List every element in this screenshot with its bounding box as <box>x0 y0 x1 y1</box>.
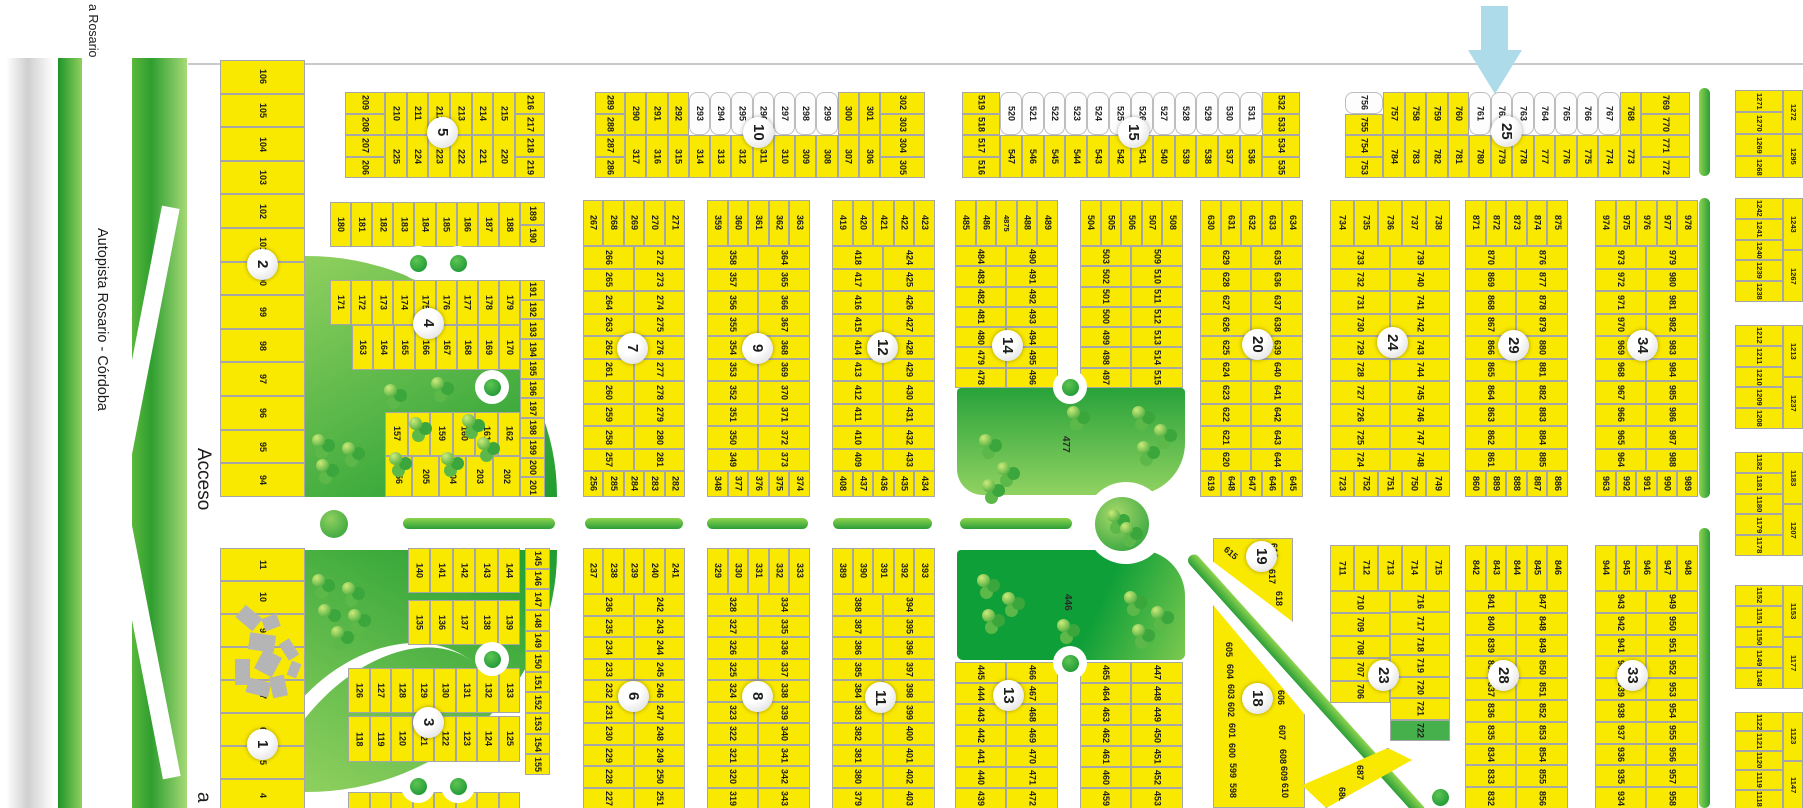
lot-178[interactable]: 178 <box>478 280 499 325</box>
lot-94[interactable]: 94 <box>220 463 305 497</box>
lot-539[interactable]: 539 <box>1175 135 1197 178</box>
lot-478[interactable]: 478 <box>955 368 1006 388</box>
lot-274[interactable]: 274 <box>634 291 685 314</box>
lot-964[interactable]: 964 <box>1595 449 1646 472</box>
lot-502[interactable]: 502 <box>1080 266 1131 286</box>
lot-835[interactable]: 835 <box>1465 722 1516 744</box>
lot-397[interactable]: 397 <box>883 659 935 681</box>
lot-342[interactable]: 342 <box>758 766 810 788</box>
lot-219[interactable]: 219 <box>515 157 545 179</box>
lot-408[interactable]: 408 <box>832 471 853 497</box>
lot-633[interactable]: 633 <box>1262 200 1283 246</box>
lot-938[interactable]: 938 <box>1595 700 1646 722</box>
lot-535[interactable]: 535 <box>1262 157 1300 179</box>
lot-234[interactable]: 234 <box>583 637 634 659</box>
lot-630[interactable]: 630 <box>1200 200 1221 246</box>
lot-174[interactable]: 174 <box>393 280 414 325</box>
lot-547[interactable]: 547 <box>1000 135 1022 178</box>
lot-360[interactable]: 360 <box>728 200 749 246</box>
lot-284[interactable]: 284 <box>624 471 644 497</box>
lot-987[interactable]: 987 <box>1646 426 1698 449</box>
lot-874[interactable]: 874 <box>1527 200 1548 246</box>
lot-947[interactable]: 947 <box>1657 545 1678 591</box>
lot-133[interactable]: 133 <box>499 668 521 713</box>
lot-403[interactable]: 403 <box>883 788 935 808</box>
lot-436[interactable]: 436 <box>873 471 894 497</box>
lot-315[interactable]: 315 <box>668 135 689 178</box>
lot-298[interactable]: 298 <box>795 92 816 135</box>
lot-241[interactable]: 241 <box>665 548 685 594</box>
lot-645[interactable]: 645 <box>1282 471 1303 497</box>
lot-249[interactable]: 249 <box>634 745 685 767</box>
lot-780[interactable]: 780 <box>1469 135 1491 178</box>
lot-719[interactable]: 719 <box>1390 655 1450 676</box>
lot-465[interactable]: 465 <box>1080 662 1131 683</box>
lot-199[interactable]: 199 <box>520 438 545 458</box>
lot-754[interactable]: 754 <box>1345 135 1383 157</box>
lot-519[interactable]: 519 <box>962 92 1000 114</box>
lot-991[interactable]: 991 <box>1636 471 1657 497</box>
lot-1209[interactable]: 1209 <box>1735 387 1783 408</box>
lot-126[interactable]: 126 <box>348 668 370 713</box>
lot-601[interactable]: 601 <box>1227 723 1236 743</box>
lot-419[interactable]: 419 <box>832 200 853 246</box>
lot-770[interactable]: 770 <box>1641 114 1690 136</box>
lot-847[interactable]: 847 <box>1516 591 1568 613</box>
lot-282[interactable]: 282 <box>665 471 685 497</box>
lot-449[interactable]: 449 <box>1131 704 1183 725</box>
lot-483[interactable]: 483 <box>955 266 1006 286</box>
lot-869[interactable]: 869 <box>1465 269 1516 292</box>
lot-394[interactable]: 394 <box>883 594 935 616</box>
lot-610[interactable]: 610 <box>1280 783 1289 803</box>
lot-602[interactable]: 602 <box>1226 702 1235 722</box>
lot-599[interactable]: 599 <box>1228 763 1237 783</box>
lot-320[interactable]: 320 <box>707 766 758 788</box>
lot-269[interactable]: 269 <box>624 200 644 246</box>
lot-168[interactable]: 168 <box>457 325 478 370</box>
lot-242[interactable]: 242 <box>634 594 685 616</box>
lot-618[interactable]: 618 <box>1274 591 1283 611</box>
lot-845[interactable]: 845 <box>1527 545 1548 591</box>
lot-934[interactable]: 934 <box>1595 787 1646 808</box>
lot-516[interactable]: 516 <box>962 157 1000 179</box>
lot-358[interactable]: 358 <box>707 246 758 269</box>
lot-856[interactable]: 856 <box>1516 787 1568 808</box>
lot-461[interactable]: 461 <box>1080 746 1131 767</box>
lot-418[interactable]: 418 <box>832 246 883 269</box>
lot-752[interactable]: 752 <box>1354 471 1378 497</box>
lot-313[interactable]: 313 <box>710 135 731 178</box>
lot-957[interactable]: 957 <box>1646 765 1698 787</box>
lot-737[interactable]: 737 <box>1402 200 1426 246</box>
lot-434[interactable]: 434 <box>914 471 935 497</box>
lot-951[interactable]: 951 <box>1646 635 1698 657</box>
lot-240[interactable]: 240 <box>644 548 664 594</box>
lot-1120[interactable]: 1120 <box>1735 751 1783 770</box>
lot-421[interactable]: 421 <box>873 200 894 246</box>
lot-150[interactable]: 150 <box>525 651 550 672</box>
lot-713[interactable]: 713 <box>1378 545 1402 591</box>
lot-978[interactable]: 978 <box>1677 200 1698 246</box>
lot-224[interactable]: 224 <box>407 135 429 178</box>
lot-139[interactable]: 139 <box>498 600 520 645</box>
lot-881[interactable]: 881 <box>1516 359 1568 382</box>
lot-251[interactable]: 251 <box>634 788 685 808</box>
lot-872[interactable]: 872 <box>1486 200 1507 246</box>
lot-715[interactable]: 715 <box>1426 545 1450 591</box>
lot-322[interactable]: 322 <box>707 723 758 745</box>
lot-943[interactable]: 943 <box>1595 591 1646 613</box>
lot-131[interactable]: 131 <box>456 668 478 713</box>
lot-184[interactable]: 184 <box>414 202 435 247</box>
lot-459[interactable]: 459 <box>1080 788 1131 808</box>
lot-385[interactable]: 385 <box>832 659 883 681</box>
lot-620[interactable]: 620 <box>1200 449 1251 472</box>
lot-626[interactable]: 626 <box>1200 314 1251 337</box>
lot-517[interactable]: 517 <box>962 135 1000 157</box>
lot-333[interactable]: 333 <box>789 548 810 594</box>
lot-190[interactable]: 190 <box>520 225 545 248</box>
lot-510[interactable]: 510 <box>1131 266 1183 286</box>
lot-849[interactable]: 849 <box>1516 635 1568 657</box>
lot-424[interactable]: 424 <box>883 246 935 269</box>
lot-775[interactable]: 775 <box>1577 135 1599 178</box>
lot-170[interactable]: 170 <box>499 325 520 370</box>
lot-521[interactable]: 521 <box>1022 92 1044 135</box>
lot-162[interactable]: 162 <box>498 412 521 456</box>
lot-606[interactable]: 606 <box>1276 690 1285 710</box>
lot-883[interactable]: 883 <box>1516 404 1568 427</box>
lot-759[interactable]: 759 <box>1426 92 1448 135</box>
lot-472[interactable]: 472 <box>1006 788 1058 808</box>
lot-511[interactable]: 511 <box>1131 287 1183 307</box>
lot-543[interactable]: 543 <box>1087 135 1109 178</box>
lot-486[interactable]: 486 <box>976 200 997 246</box>
lot-862[interactable]: 862 <box>1465 426 1516 449</box>
lot-739[interactable]: 739 <box>1390 246 1450 269</box>
lot-771[interactable]: 771 <box>1641 135 1690 157</box>
lot-361[interactable]: 361 <box>748 200 769 246</box>
lot-1242[interactable]: 1242 <box>1735 198 1783 219</box>
lot-142[interactable]: 142 <box>453 548 475 593</box>
lot-359[interactable]: 359 <box>707 200 728 246</box>
lot-509[interactable]: 509 <box>1131 246 1183 266</box>
lot-257[interactable]: 257 <box>583 449 634 472</box>
lot-776[interactable]: 776 <box>1555 135 1577 178</box>
lot-1151[interactable]: 1151 <box>1735 606 1783 627</box>
lot-288[interactable]: 288 <box>595 114 625 136</box>
lot-127[interactable]: 127 <box>370 668 392 713</box>
lot-980[interactable]: 980 <box>1646 269 1698 292</box>
lot-264[interactable]: 264 <box>583 291 634 314</box>
lot-875[interactable]: 875 <box>1547 200 1568 246</box>
lot-839[interactable]: 839 <box>1465 635 1516 657</box>
lot-463[interactable]: 463 <box>1080 704 1131 725</box>
lot-512[interactable]: 512 <box>1131 307 1183 327</box>
lot-941[interactable]: 941 <box>1595 635 1646 657</box>
lot-149[interactable]: 149 <box>525 631 550 652</box>
lot-544[interactable]: 544 <box>1065 135 1087 178</box>
lot-1119[interactable]: 1119 <box>1735 770 1783 789</box>
lot-686[interactable]: 686 <box>1337 787 1346 807</box>
lot-888[interactable]: 888 <box>1506 471 1527 497</box>
lot-747[interactable]: 747 <box>1390 426 1450 449</box>
lot-979[interactable]: 979 <box>1646 246 1698 269</box>
lot-372[interactable]: 372 <box>758 426 810 449</box>
lot-1210[interactable]: 1210 <box>1735 367 1783 388</box>
lot-381[interactable]: 381 <box>832 745 883 767</box>
lot-453[interactable]: 453 <box>1131 788 1183 808</box>
lot-147[interactable]: 147 <box>525 589 550 610</box>
lot-623[interactable]: 623 <box>1200 381 1251 404</box>
lot-201[interactable]: 201 <box>520 477 545 497</box>
lot-285[interactable]: 285 <box>603 471 623 497</box>
lot-1267[interactable]: 1267 <box>1783 250 1803 302</box>
lot-367[interactable]: 367 <box>758 314 810 337</box>
lot-238[interactable]: 238 <box>603 548 623 594</box>
lot-191[interactable]: 191 <box>520 280 545 300</box>
lot-751[interactable]: 751 <box>1378 471 1402 497</box>
lot-722[interactable]: 722 <box>1390 720 1450 741</box>
lot-cell[interactable] <box>499 792 521 808</box>
lot-1147[interactable]: 1147 <box>1783 761 1803 808</box>
lot-985[interactable]: 985 <box>1646 381 1698 404</box>
lot-420[interactable]: 420 <box>853 200 874 246</box>
lot-870[interactable]: 870 <box>1465 246 1516 269</box>
lot-992[interactable]: 992 <box>1616 471 1637 497</box>
lot-265[interactable]: 265 <box>583 269 634 292</box>
lot-440[interactable]: 440 <box>955 767 1006 788</box>
lot-727[interactable]: 727 <box>1330 381 1390 404</box>
lot-1152[interactable]: 1152 <box>1735 585 1783 606</box>
lot-836[interactable]: 836 <box>1465 700 1516 722</box>
lot-1240[interactable]: 1240 <box>1735 240 1783 261</box>
lot-863[interactable]: 863 <box>1465 404 1516 427</box>
lot-723[interactable]: 723 <box>1330 471 1354 497</box>
lot-194[interactable]: 194 <box>520 339 545 359</box>
lot-734[interactable]: 734 <box>1330 200 1354 246</box>
lot-336[interactable]: 336 <box>758 637 810 659</box>
lot-965[interactable]: 965 <box>1595 426 1646 449</box>
lot-259[interactable]: 259 <box>583 404 634 427</box>
lot-1123[interactable]: 1123 <box>1783 712 1803 761</box>
lot-196[interactable]: 196 <box>520 379 545 399</box>
lot-744[interactable]: 744 <box>1390 359 1450 382</box>
lot-95[interactable]: 95 <box>220 430 305 464</box>
lot-632[interactable]: 632 <box>1241 200 1262 246</box>
lot-523[interactable]: 523 <box>1065 92 1087 135</box>
lot-493[interactable]: 493 <box>1006 307 1058 327</box>
lot-343[interactable]: 343 <box>758 788 810 808</box>
lot-138[interactable]: 138 <box>475 600 497 645</box>
lot-720[interactable]: 720 <box>1390 677 1450 698</box>
lot-972[interactable]: 972 <box>1595 269 1646 292</box>
lot-944[interactable]: 944 <box>1595 545 1616 591</box>
lot-1213[interactable]: 1213 <box>1783 325 1803 377</box>
lot-1269[interactable]: 1269 <box>1735 134 1783 156</box>
lot-647[interactable]: 647 <box>1241 471 1262 497</box>
lot-530[interactable]: 530 <box>1218 92 1240 135</box>
lot-1183[interactable]: 1183 <box>1783 452 1803 504</box>
lot-328[interactable]: 328 <box>707 594 758 616</box>
lot-955[interactable]: 955 <box>1646 722 1698 744</box>
lot-310[interactable]: 310 <box>774 135 795 178</box>
lot-183[interactable]: 183 <box>393 202 414 247</box>
lot-151[interactable]: 151 <box>525 672 550 693</box>
lot-604[interactable]: 604 <box>1225 664 1234 684</box>
lot-876[interactable]: 876 <box>1516 246 1568 269</box>
lot-145[interactable]: 145 <box>525 548 550 569</box>
lot-325[interactable]: 325 <box>707 659 758 681</box>
lot-179[interactable]: 179 <box>499 280 520 325</box>
lot-362[interactable]: 362 <box>769 200 790 246</box>
lot-124[interactable]: 124 <box>477 716 499 762</box>
lot-154[interactable]: 154 <box>525 734 550 755</box>
lot-728[interactable]: 728 <box>1330 359 1390 382</box>
lot-966[interactable]: 966 <box>1595 404 1646 427</box>
lot-303[interactable]: 303 <box>880 114 925 136</box>
lot-642[interactable]: 642 <box>1251 404 1303 427</box>
lot-291[interactable]: 291 <box>646 92 667 135</box>
lot-391[interactable]: 391 <box>873 548 894 594</box>
lot-412[interactable]: 412 <box>832 381 883 404</box>
lot-416[interactable]: 416 <box>832 291 883 314</box>
lot-718[interactable]: 718 <box>1390 634 1450 655</box>
lot-365[interactable]: 365 <box>758 269 810 292</box>
lot-1118[interactable]: 1118 <box>1735 790 1783 808</box>
lot-598[interactable]: 598 <box>1228 783 1237 803</box>
lot-185[interactable]: 185 <box>436 202 457 247</box>
lot-205[interactable]: 205 <box>412 456 439 497</box>
lot-469[interactable]: 469 <box>1006 725 1058 746</box>
lot-369[interactable]: 369 <box>758 359 810 382</box>
lot-209[interactable]: 209 <box>345 92 385 114</box>
lot-239[interactable]: 239 <box>624 548 644 594</box>
lot-492[interactable]: 492 <box>1006 287 1058 307</box>
lot-1178[interactable]: 1178 <box>1735 535 1783 556</box>
lot-316[interactable]: 316 <box>646 135 667 178</box>
lot-624[interactable]: 624 <box>1200 359 1251 382</box>
lot-724[interactable]: 724 <box>1330 449 1390 472</box>
lot-377[interactable]: 377 <box>728 471 749 497</box>
lot-855[interactable]: 855 <box>1516 765 1568 787</box>
lot-958[interactable]: 958 <box>1646 787 1698 808</box>
lot-758[interactable]: 758 <box>1405 92 1427 135</box>
lot-214[interactable]: 214 <box>472 92 494 135</box>
lot-488[interactable]: 488 <box>1017 200 1038 246</box>
lot-712[interactable]: 712 <box>1354 545 1378 591</box>
lot-777[interactable]: 777 <box>1534 135 1556 178</box>
lot-854[interactable]: 854 <box>1516 744 1568 766</box>
lot-373[interactable]: 373 <box>758 449 810 472</box>
lot-886[interactable]: 886 <box>1547 471 1568 497</box>
lot-485[interactable]: 485 <box>955 200 976 246</box>
lot-520[interactable]: 520 <box>1000 92 1022 135</box>
lot-273[interactable]: 273 <box>634 269 685 292</box>
lot-634[interactable]: 634 <box>1282 200 1303 246</box>
lot-482[interactable]: 482 <box>955 287 1006 307</box>
lot-297[interactable]: 297 <box>774 92 795 135</box>
lot-375[interactable]: 375 <box>769 471 790 497</box>
lot-192[interactable]: 192 <box>520 300 545 320</box>
lot-200[interactable]: 200 <box>520 458 545 478</box>
lot-973[interactable]: 973 <box>1595 246 1646 269</box>
lot-431[interactable]: 431 <box>883 404 935 427</box>
lot-877[interactable]: 877 <box>1516 269 1568 292</box>
lot-537[interactable]: 537 <box>1218 135 1240 178</box>
lot-937[interactable]: 937 <box>1595 722 1646 744</box>
lot-393[interactable]: 393 <box>914 548 935 594</box>
lot-507[interactable]: 507 <box>1142 200 1163 246</box>
lot-447[interactable]: 447 <box>1131 662 1183 683</box>
lot-755[interactable]: 755 <box>1345 114 1383 136</box>
lot-635[interactable]: 635 <box>1251 246 1303 269</box>
lot-143[interactable]: 143 <box>475 548 497 593</box>
lot-627[interactable]: 627 <box>1200 291 1251 314</box>
lot-271[interactable]: 271 <box>665 200 685 246</box>
lot-1272[interactable]: 1272 <box>1783 90 1803 134</box>
lot-769[interactable]: 769 <box>1641 92 1690 114</box>
lot-437[interactable]: 437 <box>853 471 874 497</box>
lot-464[interactable]: 464 <box>1080 683 1131 704</box>
lot-104[interactable]: 104 <box>220 127 305 161</box>
lot-152[interactable]: 152 <box>525 692 550 713</box>
lot-753[interactable]: 753 <box>1345 157 1383 179</box>
lot-748[interactable]: 748 <box>1390 449 1450 472</box>
lot-750[interactable]: 750 <box>1402 471 1426 497</box>
lot-833[interactable]: 833 <box>1465 765 1516 787</box>
lot-448[interactable]: 448 <box>1131 683 1183 704</box>
lot-417[interactable]: 417 <box>832 269 883 292</box>
lot-387[interactable]: 387 <box>832 616 883 638</box>
lot-975[interactable]: 975 <box>1616 200 1637 246</box>
lot-534[interactable]: 534 <box>1262 135 1300 157</box>
lot-462[interactable]: 462 <box>1080 725 1131 746</box>
lot-244[interactable]: 244 <box>634 637 685 659</box>
lot-329[interactable]: 329 <box>707 548 728 594</box>
lot-237[interactable]: 237 <box>583 548 603 594</box>
lot-317[interactable]: 317 <box>625 135 646 178</box>
lot-119[interactable]: 119 <box>370 716 392 762</box>
lot-1208[interactable]: 1208 <box>1735 408 1783 429</box>
lot-218[interactable]: 218 <box>515 135 545 157</box>
lot-279[interactable]: 279 <box>634 404 685 427</box>
lot-628[interactable]: 628 <box>1200 269 1251 292</box>
lot-427[interactable]: 427 <box>883 314 935 337</box>
lot-349[interactable]: 349 <box>707 449 758 472</box>
lot-498[interactable]: 498 <box>1080 347 1131 367</box>
lot-1181[interactable]: 1181 <box>1735 473 1783 494</box>
lot-429[interactable]: 429 <box>883 359 935 382</box>
lot-128[interactable]: 128 <box>391 668 413 713</box>
lot-484[interactable]: 484 <box>955 246 1006 266</box>
lot-518[interactable]: 518 <box>962 114 1000 136</box>
lot-1239[interactable]: 1239 <box>1735 260 1783 281</box>
lot-749[interactable]: 749 <box>1426 471 1450 497</box>
lot-169[interactable]: 169 <box>478 325 499 370</box>
lot-193[interactable]: 193 <box>520 319 545 339</box>
lot-871[interactable]: 871 <box>1465 200 1486 246</box>
lot-1177[interactable]: 1177 <box>1783 637 1803 689</box>
lot-260[interactable]: 260 <box>583 381 634 404</box>
lot-968[interactable]: 968 <box>1595 359 1646 382</box>
lot-366[interactable]: 366 <box>758 291 810 314</box>
lot-452[interactable]: 452 <box>1131 767 1183 788</box>
lot-1270[interactable]: 1270 <box>1735 112 1783 134</box>
lot-760[interactable]: 760 <box>1448 92 1470 135</box>
lot-768[interactable]: 768 <box>1620 92 1642 135</box>
